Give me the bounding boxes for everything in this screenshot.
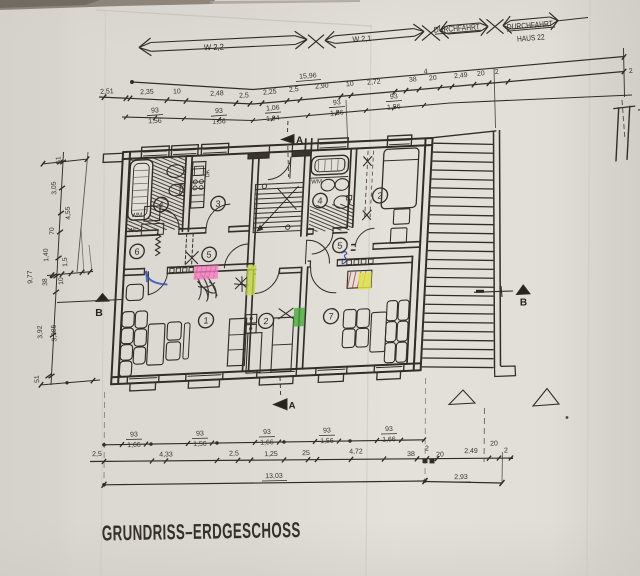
svg-text:4: 4 [158,200,164,210]
svg-text:10: 10 [173,88,181,95]
svg-text:6: 6 [134,246,140,256]
svg-text:20: 20 [477,70,485,78]
svg-text:2,35: 2,35 [140,89,154,97]
svg-text:2: 2 [504,447,508,454]
svg-text:4: 4 [317,196,323,206]
svg-text:4: 4 [424,68,429,75]
svg-text:15,96: 15,96 [299,72,317,80]
svg-text:GRUNDRISS–ERDGESCHOSS: GRUNDRISS–ERDGESCHOSS [102,518,301,546]
svg-text:2,48: 2,48 [210,90,224,98]
svg-text:3,05: 3,05 [51,181,59,195]
svg-text:9,77: 9,77 [27,270,35,284]
svg-text:4,33: 4,33 [159,451,173,458]
svg-text:1,56: 1,56 [193,441,207,448]
svg-text:51: 51 [55,156,62,164]
svg-text:1,56: 1,56 [387,103,401,111]
svg-text:93: 93 [215,108,223,115]
svg-text:2,49: 2,49 [454,72,468,80]
svg-text:1,56: 1,56 [148,118,162,125]
svg-text:38: 38 [407,451,415,458]
svg-text:1,66: 1,66 [382,436,396,443]
svg-text:2,5: 2,5 [289,86,299,94]
svg-text:WC: WC [128,227,139,234]
svg-text:93: 93 [390,93,398,101]
svg-text:2,5: 2,5 [92,451,102,458]
svg-text:WM: WM [131,212,142,219]
svg-text:13,03: 13,03 [265,473,283,480]
svg-text:DK: DK [205,169,211,177]
svg-text:20: 20 [429,75,437,83]
svg-text:93: 93 [196,430,204,437]
svg-text:B: B [520,298,527,309]
svg-text:1,25: 1,25 [264,451,278,458]
svg-text:10: 10 [58,277,65,285]
svg-text:1,5: 1,5 [62,257,69,267]
svg-text:2: 2 [425,445,429,452]
svg-text:2,93: 2,93 [454,474,468,481]
svg-text:7: 7 [328,311,334,321]
svg-text:5: 5 [206,250,212,260]
svg-text:3: 3 [215,199,221,209]
svg-text:W 2,1: W 2,1 [352,34,371,45]
svg-text:1,40: 1,40 [43,248,51,262]
svg-text:3,985: 3,985 [51,324,59,342]
svg-text:4,72: 4,72 [349,448,363,455]
svg-text:A: A [296,135,303,146]
svg-text:1,94: 1,94 [266,115,280,123]
svg-text:B: B [95,307,103,319]
svg-text:93: 93 [151,107,159,114]
svg-text:2: 2 [377,191,383,201]
svg-text:93: 93 [385,426,393,433]
svg-text:2,90: 2,90 [315,82,329,90]
svg-text:38: 38 [409,76,417,84]
svg-text:3,92: 3,92 [37,325,45,339]
svg-text:70: 70 [49,227,56,235]
svg-text:93: 93 [333,99,341,107]
svg-text:93: 93 [263,429,271,436]
svg-text:W 2,2: W 2,2 [204,42,225,52]
svg-text:1,56: 1,56 [212,118,226,125]
svg-text:93: 93 [323,427,331,434]
svg-text:WM: WM [311,179,322,185]
svg-text:1: 1 [203,315,209,325]
svg-text:93: 93 [130,431,138,438]
svg-text:2: 2 [495,69,500,76]
svg-text:1,56: 1,56 [320,438,334,445]
svg-text:2,5: 2,5 [239,92,249,99]
svg-text:2,25: 2,25 [263,88,277,96]
svg-text:20: 20 [490,440,498,447]
svg-text:1,66: 1,66 [127,442,141,449]
svg-text:4,55: 4,55 [65,206,73,220]
svg-text:1,66: 1,66 [260,439,274,446]
svg-text:20: 20 [436,451,444,458]
svg-text:51: 51 [34,375,41,383]
svg-text:2,5: 2,5 [229,450,239,457]
svg-text:1,56: 1,56 [330,109,344,117]
svg-text:10: 10 [346,81,354,89]
svg-text:2: 2 [263,316,269,326]
svg-text:25: 25 [302,450,310,457]
svg-text:2: 2 [629,68,634,75]
svg-text:A: A [289,401,296,412]
svg-text:5: 5 [337,240,343,250]
svg-text:2,51: 2,51 [100,88,114,96]
svg-text:38: 38 [42,278,49,286]
svg-text:2,49: 2,49 [464,448,478,455]
svg-text:2,72: 2,72 [367,78,381,86]
svg-text:1,06: 1,06 [266,104,280,112]
